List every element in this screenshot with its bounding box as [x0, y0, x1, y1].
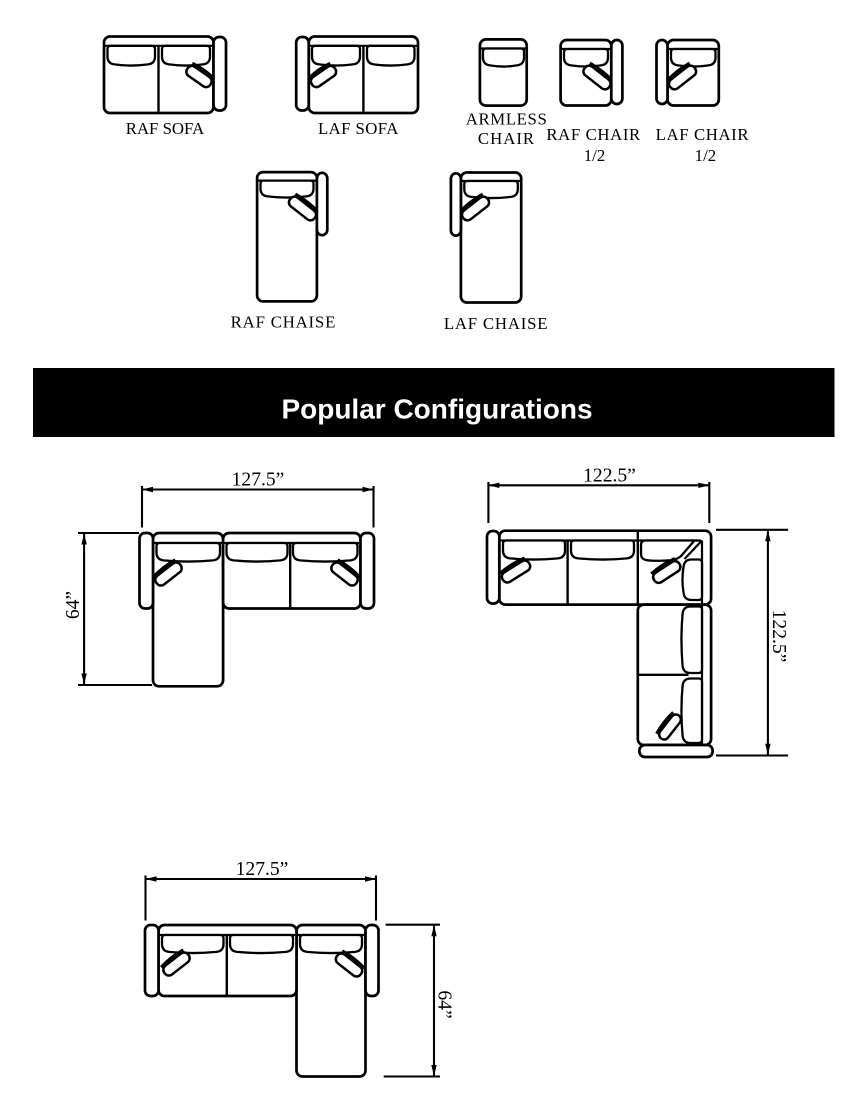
svg-text:RAF SOFA: RAF SOFA	[126, 119, 205, 138]
svg-text:ARMLESS: ARMLESS	[466, 110, 548, 129]
svg-text:1/2: 1/2	[584, 146, 605, 165]
svg-text:122.5”: 122.5”	[768, 610, 789, 663]
svg-text:LAF CHAISE: LAF CHAISE	[444, 314, 549, 333]
svg-text:RAF CHAIR: RAF CHAIR	[546, 125, 641, 144]
svg-text:Popular Configurations: Popular Configurations	[281, 394, 592, 425]
svg-text:1/2: 1/2	[695, 146, 716, 165]
svg-text:122.5”: 122.5”	[583, 465, 636, 486]
svg-text:127.5”: 127.5”	[232, 470, 285, 491]
svg-text:64”: 64”	[434, 990, 455, 1018]
svg-text:RAF CHAISE: RAF CHAISE	[231, 312, 336, 331]
svg-text:CHAIR: CHAIR	[478, 129, 535, 148]
svg-text:LAF SOFA: LAF SOFA	[318, 119, 399, 138]
svg-text:64”: 64”	[63, 591, 84, 619]
svg-text:LAF CHAIR: LAF CHAIR	[656, 125, 750, 144]
svg-text:127.5”: 127.5”	[236, 859, 289, 880]
